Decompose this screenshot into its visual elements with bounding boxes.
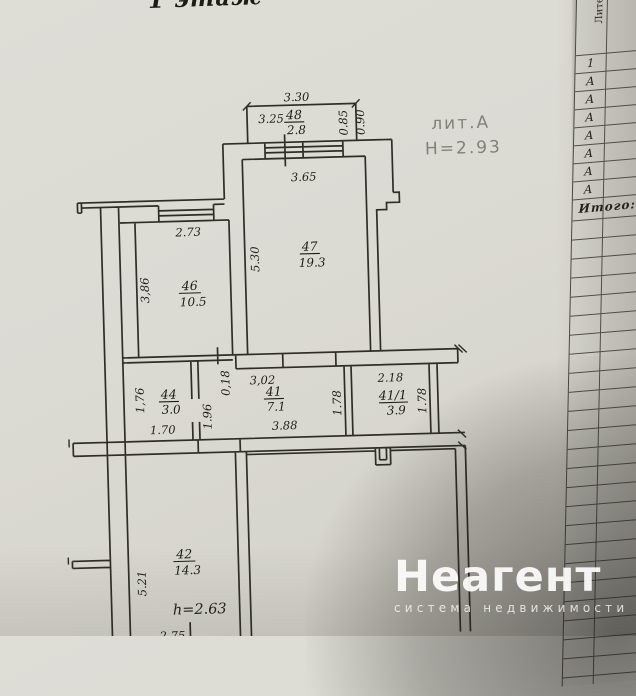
watermark-brand: Неагент xyxy=(394,556,628,599)
room-46-underline xyxy=(179,293,201,294)
ceiling-height-note: h=2.63 xyxy=(173,601,227,618)
table-cell: 1 xyxy=(576,54,606,73)
table-cell: А xyxy=(574,108,604,127)
room-46-area: 10.5 xyxy=(180,295,207,310)
watermark-tagline: система недвижимости xyxy=(394,601,628,615)
table-cell: А xyxy=(574,126,604,145)
room-42-underline xyxy=(173,561,195,562)
dim-r42-depth: 5.21 xyxy=(135,571,150,597)
room-46-number: 46 xyxy=(181,278,198,293)
room-44-area: 3.0 xyxy=(161,402,181,417)
room-41-1-area: 3.9 xyxy=(387,403,407,418)
dim-r44-width: 1.70 xyxy=(150,423,176,438)
dim-r46-width: 2.73 xyxy=(174,225,201,240)
room-41-number: 41 xyxy=(265,384,282,399)
building-height-label: Н=2.93 xyxy=(425,137,502,159)
dim-r41-1-width: 2.18 xyxy=(376,370,403,385)
dim-r47-depth: 5.30 xyxy=(248,246,263,272)
room-47-area: 19.3 xyxy=(299,255,326,270)
room-48-area: 2.8 xyxy=(286,123,307,138)
table-cell: А xyxy=(573,180,603,199)
table-cell: А xyxy=(575,90,605,109)
dim-r41-1-depth: 1.78 xyxy=(415,388,430,414)
room-47-number: 47 xyxy=(301,238,318,253)
litera-label: лит.А xyxy=(431,113,490,135)
dim-corridor-seg: 1.96 xyxy=(200,404,215,430)
room-48-number: 48 xyxy=(285,107,302,122)
dim-balcony-inner: 3.25 xyxy=(258,111,284,126)
dim-balcony-width: 3.30 xyxy=(283,90,309,105)
room-41-area: 7.1 xyxy=(266,399,285,414)
dim-corridor-width2: 3.88 xyxy=(272,418,298,433)
room-41-1-number: 41/1 xyxy=(378,387,407,403)
watermark: Неагент система недвижимости xyxy=(394,556,628,615)
table-header: Литера по п Эт xyxy=(576,0,636,56)
room-44-number: 44 xyxy=(160,386,177,401)
dim-r47-width: 3.65 xyxy=(291,169,317,184)
table-cell: А xyxy=(574,144,604,163)
room-42-number: 42 xyxy=(175,546,192,561)
dimension-ticks xyxy=(56,96,473,564)
dim-balcony-d1: 0.85 xyxy=(336,110,351,136)
table-cell: А xyxy=(573,162,603,181)
room-42-area: 14.3 xyxy=(174,563,201,578)
room-47-underline xyxy=(300,253,320,254)
dim-wall-thickness: 0,18 xyxy=(218,370,233,396)
floor-plan-svg: 3.30 3.25 48 2.8 0.85 0.90 3.65 5.30 47 … xyxy=(0,0,636,636)
dim-r46-depth: 3,86 xyxy=(137,277,152,303)
dim-r44-depth: 1,76 xyxy=(133,388,148,414)
dim-balcony-d2: 0.90 xyxy=(353,109,368,135)
table-cell: А xyxy=(575,72,605,91)
dim-r42-width: 2.75 xyxy=(158,628,185,636)
table-col1-header: Литера по п xyxy=(594,0,607,24)
dim-r41-depth: 1.78 xyxy=(330,390,345,416)
